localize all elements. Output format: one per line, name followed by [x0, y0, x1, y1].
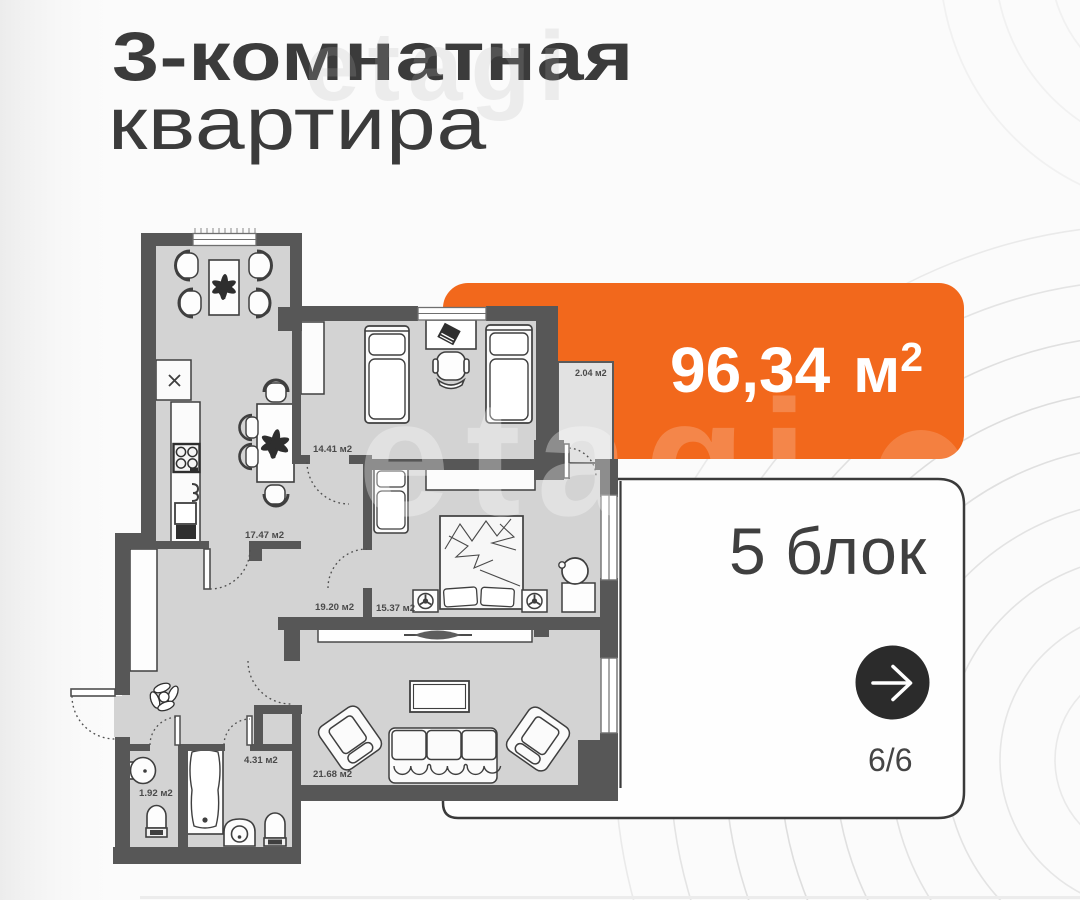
svg-text:4.31 м2: 4.31 м2 [244, 755, 278, 766]
svg-text:1.92 м2: 1.92 м2 [139, 788, 173, 799]
svg-text:etagi: etagi [305, 11, 574, 121]
svg-text:5 блок: 5 блок [729, 514, 927, 588]
svg-text:14.41 м2: 14.41 м2 [313, 444, 352, 455]
svg-text:19.20 м2: 19.20 м2 [315, 602, 354, 613]
svg-text:15.37 м2: 15.37 м2 [376, 603, 415, 614]
svg-text:6/6: 6/6 [868, 742, 912, 778]
svg-text:21.68 м2: 21.68 м2 [313, 769, 352, 780]
svg-text:17.47 м2: 17.47 м2 [245, 530, 284, 541]
